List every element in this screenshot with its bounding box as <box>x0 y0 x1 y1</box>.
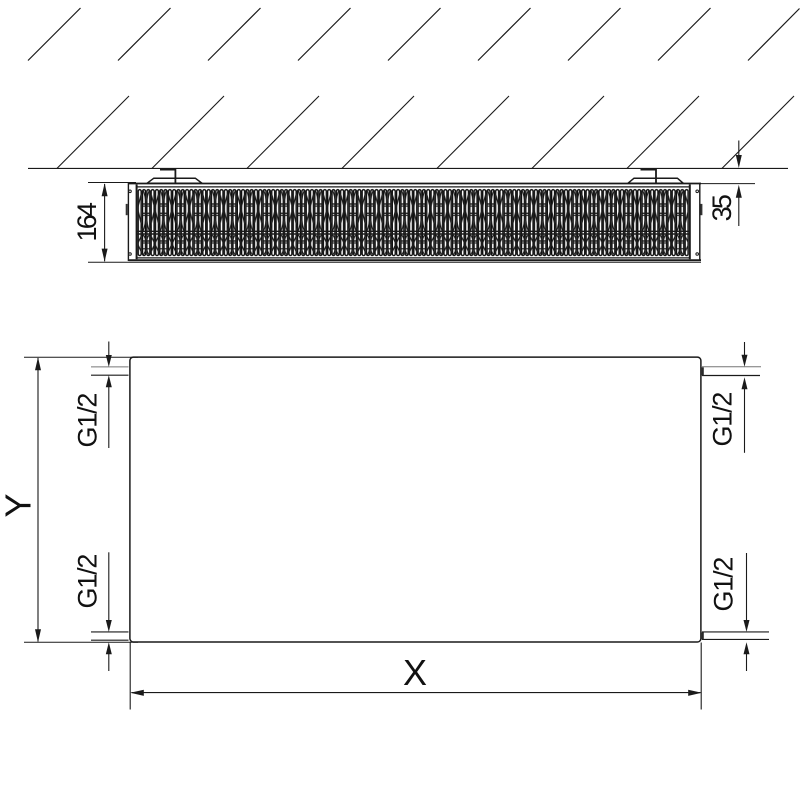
svg-text:G1/2: G1/2 <box>709 558 739 612</box>
svg-text:Y: Y <box>0 493 39 517</box>
svg-text:G1/2: G1/2 <box>73 555 103 609</box>
svg-text:35: 35 <box>707 195 737 221</box>
svg-text:X: X <box>403 652 427 693</box>
svg-text:164: 164 <box>72 202 102 241</box>
svg-text:G1/2: G1/2 <box>73 394 103 448</box>
svg-text:G1/2: G1/2 <box>708 393 738 447</box>
